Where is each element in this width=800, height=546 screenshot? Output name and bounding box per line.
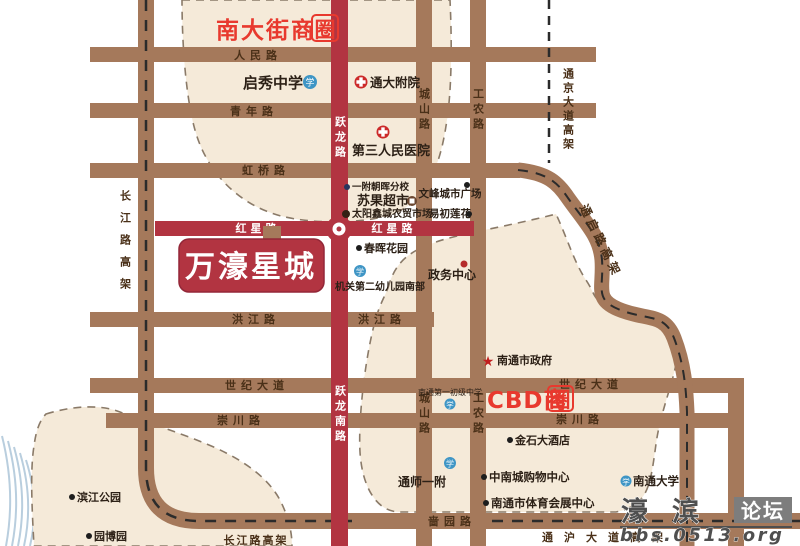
poi-dot [466, 211, 472, 217]
poi-dot-red [461, 261, 468, 268]
star-icon: ★ [482, 354, 495, 370]
poi-dot [344, 184, 350, 190]
label-chongchuan-west: 崇川路 [217, 413, 265, 427]
road-shiji [90, 378, 730, 393]
poi-dot [483, 500, 489, 506]
zhongnan-mall: 中南城购物中心 [481, 470, 570, 484]
watermark-name: 濠滨 [621, 496, 723, 528]
tongda-label: 通大附院 [370, 75, 421, 90]
zhongnan-label: 中南城购物中心 [489, 470, 570, 484]
jinshi-hotel: 金石大酒店 [507, 433, 570, 447]
watermark: 濠滨 论坛 bbs.0513.org [620, 496, 792, 546]
label-hongxing-east: 红星路 [372, 221, 417, 235]
yichu-label: 易初莲花 [429, 207, 471, 220]
chunhui-garden: 春晖花园 [356, 241, 408, 255]
hospital-cross-icon [355, 76, 368, 89]
road-yuelong [331, 0, 348, 546]
poi-dot [86, 533, 92, 539]
label-shiji-west: 世纪大道 [225, 378, 289, 392]
yuanbo-label: 园博园 [94, 529, 127, 543]
suguo-supermarket: 苏果超市 [357, 193, 417, 209]
supermarket-icon [407, 196, 417, 206]
label-chengshan-south: 城山路 [418, 391, 431, 437]
yifu-chaohui-label: 一附朝晖分校 [352, 181, 410, 193]
jinshi-label: 金石大酒店 [514, 433, 570, 447]
watermark-forum: 论坛 [741, 499, 785, 523]
nandajie-circle-boxed: 圈 [315, 18, 336, 42]
school-icon: 学 [445, 399, 456, 410]
school-icon-char: 学 [622, 477, 630, 487]
ntu-label: 南通大学 [633, 474, 679, 488]
map-canvas: 人民路 青年路 虹桥路 红星路 红星路 洪江路 洪江路 世纪大道 世纪大道 崇川… [0, 0, 800, 546]
label-hongjiang-east: 洪江路 [358, 312, 406, 326]
school-icon-char: 学 [446, 459, 454, 469]
label-gongnong-south: 工农路 [472, 392, 486, 437]
sports-label: 南通市体育会展中心 [491, 496, 595, 510]
jiguan-label: 机关第二幼儿园南部 [335, 280, 425, 293]
yichu-lianhua: 易初莲花 [429, 207, 472, 220]
label-tongjing-viaduct: 通京大道高架 [562, 68, 576, 152]
label-yuelong-south: 跃龙南路 [334, 384, 348, 445]
label-chengshan-north: 城山路 [418, 87, 431, 133]
label-changjiang-viaduct-south: 长江路高架 [224, 533, 289, 546]
suguo-label: 苏果超市 [357, 193, 409, 209]
label-hongjiang-west: 洪江路 [232, 312, 280, 326]
binjiang-park: 滨江公园 [69, 490, 121, 504]
label-gongnong-north: 工农路 [472, 88, 486, 133]
hospital-cross-icon [377, 126, 390, 139]
school-icon: 学 [354, 265, 366, 277]
no1-junior-label: 南通第一初级中学 [418, 387, 482, 397]
label-qingnian: 青年路 [230, 104, 278, 118]
cbd-circle-boxed: 圈 [550, 388, 571, 412]
label-chongchuan-east: 崇川路 [556, 412, 604, 426]
qixiu-label: 启秀中学 [243, 74, 303, 92]
road-hongxing [155, 221, 474, 236]
road-hongqiao [90, 163, 520, 178]
yifu-chaohui-school: 一附朝晖分校 [344, 181, 410, 193]
school-icon-char: 学 [305, 77, 314, 89]
label-hongqiao: 虹桥路 [242, 163, 290, 177]
sports-center: 南通市体育会展中心 [483, 496, 595, 510]
school-icon-char: 学 [356, 267, 364, 277]
taiyang-market: 太阳鑫城农贸市场 [342, 207, 432, 220]
poi-dot [481, 474, 487, 480]
watermark-url: bbs.0513.org [620, 525, 784, 546]
label-renmin: 人民路 [234, 48, 282, 62]
binjiang-label: 滨江公园 [77, 490, 121, 504]
location-map: 人民路 青年路 虹桥路 红星路 红星路 洪江路 洪江路 世纪大道 世纪大道 崇川… [0, 0, 800, 546]
poi-dot [507, 437, 513, 443]
school-icon: 学 [303, 75, 317, 89]
school-icon: 学 [444, 457, 456, 469]
label-changjiang-viaduct: 长江路高架 [119, 189, 133, 300]
market-icon [342, 210, 350, 218]
city-gov-label: 南通市政府 [497, 353, 552, 367]
taiyang-label: 太阳鑫城农贸市场 [351, 207, 432, 220]
third-hospital-label: 第三人民医院 [352, 143, 430, 159]
label-yuelong: 跃龙路 [334, 115, 348, 161]
poi-dot [69, 494, 75, 500]
poi-dot [356, 245, 362, 251]
label-seyuan: 啬园路 [428, 514, 476, 528]
school-icon: 学 [621, 476, 632, 487]
school-icon-char: 学 [446, 400, 454, 410]
tongshi-label: 通师一附 [398, 474, 446, 489]
zhengwu-label: 政务中心 [428, 267, 476, 282]
chunhui-label: 春晖花园 [364, 241, 408, 255]
project-name: 万濠星城 [185, 250, 317, 285]
wenfeng-label: 文峰城市广场 [418, 187, 482, 200]
roundabout [326, 216, 352, 242]
nandajie-circle-text: 南大街商 [216, 17, 316, 44]
